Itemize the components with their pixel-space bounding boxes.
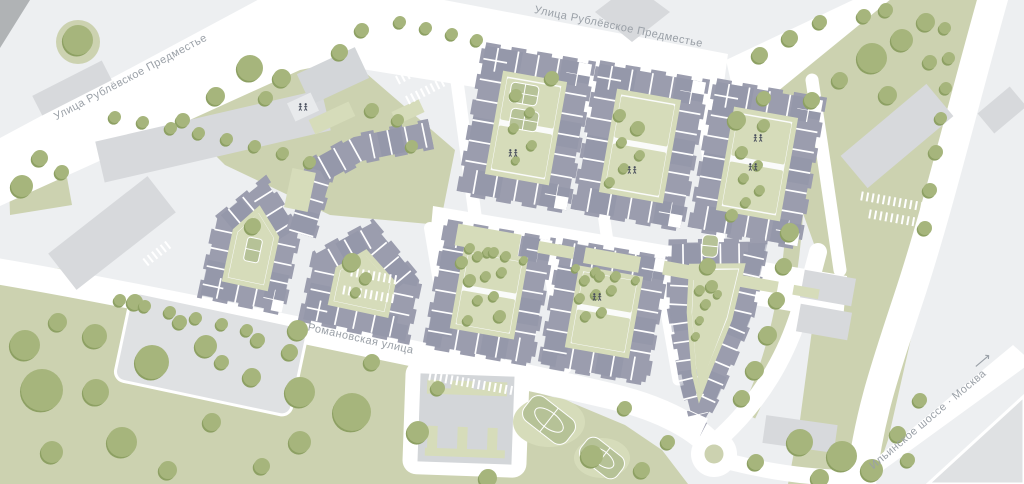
tree bbox=[481, 271, 491, 281]
tree bbox=[245, 218, 261, 234]
tree bbox=[832, 72, 848, 88]
tree bbox=[776, 258, 792, 274]
tree bbox=[243, 368, 261, 386]
tree bbox=[282, 344, 298, 360]
tree bbox=[109, 111, 121, 123]
tree bbox=[631, 121, 645, 135]
tree bbox=[497, 267, 507, 277]
tree bbox=[692, 332, 700, 340]
tree bbox=[752, 47, 768, 63]
tree bbox=[572, 264, 580, 272]
tree bbox=[769, 292, 785, 308]
tree bbox=[827, 441, 857, 471]
tree bbox=[891, 29, 913, 51]
tree bbox=[21, 369, 63, 411]
tree bbox=[510, 89, 522, 101]
tree bbox=[494, 310, 506, 322]
tree bbox=[32, 150, 48, 166]
tree bbox=[580, 275, 590, 285]
tree bbox=[237, 55, 263, 81]
masterplan-page: Улица Рублёвское Предместье Улица Рублёв… bbox=[0, 0, 1024, 484]
tree bbox=[394, 16, 406, 28]
tree bbox=[726, 209, 738, 221]
tree bbox=[285, 377, 315, 407]
tree bbox=[489, 247, 499, 257]
tree bbox=[207, 87, 225, 105]
tree bbox=[632, 276, 640, 284]
tree bbox=[787, 429, 813, 455]
tree bbox=[804, 92, 820, 108]
tree bbox=[464, 274, 476, 286]
tree bbox=[249, 140, 261, 152]
tree bbox=[512, 156, 520, 164]
tree bbox=[420, 22, 432, 34]
tree bbox=[634, 462, 650, 478]
tree bbox=[407, 421, 429, 443]
tree bbox=[259, 91, 273, 105]
tree bbox=[943, 52, 955, 64]
tree bbox=[304, 156, 316, 168]
tree bbox=[940, 82, 952, 94]
tree bbox=[913, 393, 927, 407]
tree bbox=[501, 251, 511, 261]
tree bbox=[203, 413, 221, 431]
tree bbox=[575, 293, 585, 303]
tree bbox=[758, 119, 770, 131]
tree bbox=[619, 163, 629, 173]
tree bbox=[471, 34, 483, 46]
tree bbox=[241, 324, 253, 336]
tree bbox=[701, 299, 711, 309]
tree bbox=[581, 311, 591, 321]
tree bbox=[939, 22, 951, 34]
tree bbox=[661, 435, 675, 449]
tree bbox=[135, 345, 169, 379]
tree bbox=[406, 140, 418, 152]
tree bbox=[597, 307, 607, 317]
tree bbox=[782, 30, 798, 46]
tree bbox=[879, 3, 893, 17]
tree bbox=[49, 313, 67, 331]
tree bbox=[748, 454, 764, 470]
tree bbox=[923, 55, 937, 69]
tree bbox=[63, 25, 93, 55]
tree bbox=[781, 223, 799, 241]
masterplan-map: Улица Рублёвское Предместье Улица Рублёв… bbox=[0, 0, 1024, 484]
tree bbox=[465, 243, 475, 253]
tree bbox=[216, 318, 228, 330]
tree bbox=[83, 324, 107, 348]
tree bbox=[165, 122, 177, 134]
tree bbox=[635, 150, 645, 160]
tree bbox=[935, 112, 947, 124]
tree bbox=[901, 453, 915, 467]
tree bbox=[527, 140, 537, 150]
tree bbox=[753, 160, 763, 170]
tree bbox=[251, 333, 265, 347]
tree bbox=[739, 173, 749, 183]
tree bbox=[923, 183, 937, 197]
tree bbox=[489, 291, 499, 301]
tree bbox=[190, 312, 202, 324]
tree bbox=[755, 185, 765, 195]
tree bbox=[879, 86, 897, 104]
tree bbox=[607, 285, 617, 295]
tree bbox=[759, 326, 777, 344]
tree bbox=[728, 111, 746, 129]
tree bbox=[929, 145, 943, 159]
tree bbox=[355, 23, 369, 37]
tree bbox=[857, 9, 871, 23]
tree bbox=[289, 431, 311, 453]
tree bbox=[159, 461, 177, 479]
tree bbox=[446, 28, 458, 40]
tree bbox=[509, 123, 519, 133]
tree bbox=[360, 272, 372, 284]
tree bbox=[365, 103, 379, 117]
tree bbox=[456, 256, 468, 268]
tree bbox=[734, 390, 750, 406]
tree bbox=[333, 393, 371, 431]
tree bbox=[581, 445, 603, 467]
tree bbox=[41, 441, 63, 463]
tree bbox=[696, 316, 704, 324]
tree bbox=[176, 113, 190, 127]
school bbox=[402, 360, 530, 478]
tree bbox=[611, 271, 621, 281]
tree bbox=[605, 177, 615, 187]
tree bbox=[525, 107, 535, 117]
tree bbox=[545, 71, 559, 85]
tree bbox=[83, 379, 109, 405]
tree bbox=[917, 13, 935, 31]
tree bbox=[332, 44, 348, 60]
tree bbox=[757, 91, 771, 105]
tree bbox=[473, 295, 483, 305]
tree bbox=[107, 427, 137, 457]
tree bbox=[857, 43, 887, 73]
tree bbox=[137, 116, 149, 128]
tree bbox=[463, 315, 473, 325]
tree bbox=[595, 271, 605, 281]
tree bbox=[173, 315, 187, 329]
tree bbox=[736, 146, 748, 158]
tree bbox=[164, 306, 176, 318]
tree bbox=[431, 381, 445, 395]
tree bbox=[614, 109, 626, 121]
tree bbox=[221, 133, 233, 145]
tree bbox=[288, 320, 308, 340]
tree bbox=[351, 287, 361, 297]
tree bbox=[364, 354, 380, 370]
tree bbox=[195, 335, 217, 357]
tree bbox=[706, 280, 718, 292]
tree bbox=[746, 361, 764, 379]
tree bbox=[473, 251, 483, 261]
tree bbox=[618, 401, 632, 415]
tree bbox=[617, 137, 627, 147]
tree bbox=[55, 165, 69, 179]
tree bbox=[273, 69, 291, 87]
tree bbox=[392, 114, 404, 126]
tree bbox=[139, 300, 151, 312]
tree bbox=[10, 330, 40, 360]
tree bbox=[215, 355, 229, 369]
tree bbox=[114, 294, 126, 306]
tree bbox=[193, 127, 205, 139]
tree bbox=[695, 285, 705, 295]
tree bbox=[741, 197, 751, 207]
tree bbox=[813, 15, 827, 29]
tree bbox=[700, 258, 716, 274]
tree bbox=[343, 253, 361, 271]
tree bbox=[277, 147, 289, 159]
tree bbox=[520, 256, 528, 264]
tree bbox=[918, 221, 932, 235]
tree bbox=[254, 458, 270, 474]
tree bbox=[11, 175, 33, 197]
